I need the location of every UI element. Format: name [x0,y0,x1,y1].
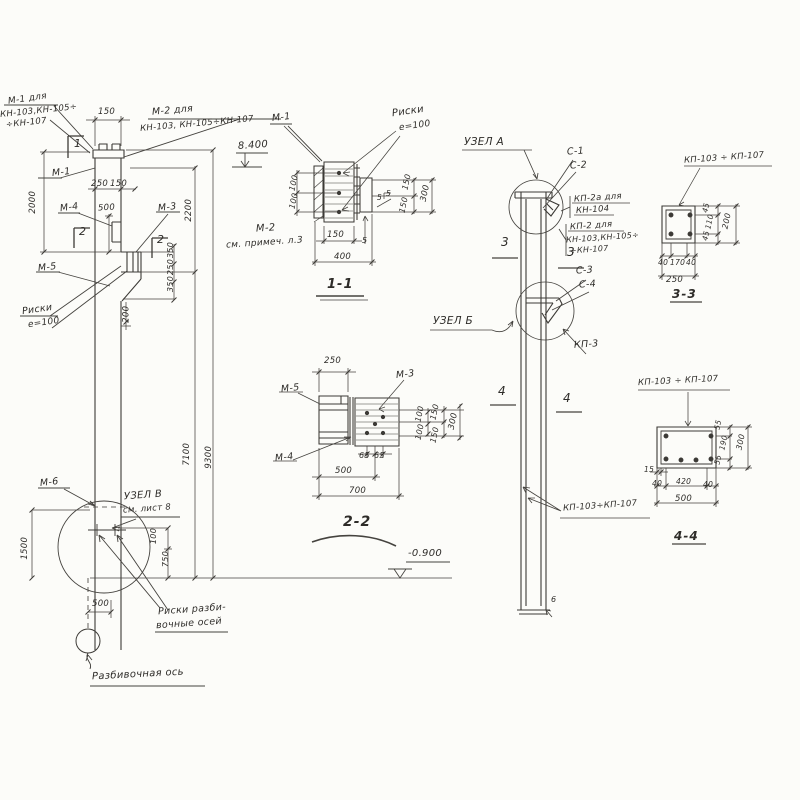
dim-45-33b: 45 [701,230,710,241]
label-riski-elev: Риски [21,303,53,317]
weld-5b: 5 [386,190,391,198]
dim-350-a: 350 [167,242,175,258]
dim-5-11: 5 [362,237,367,245]
label-c4: С-4 [579,279,597,290]
dim-700-22: 700 [349,487,366,496]
dim-2200: 2200 [185,199,194,222]
dim-55-44b: 55 [713,454,722,465]
dim-420-44: 420 [676,478,691,486]
section-mark-2-left: 2 [79,226,86,237]
label-m1: М-1 [52,167,71,178]
label-m3-elev: М-3 [158,202,177,213]
label-m5-elev: М-5 [38,262,57,273]
title-section-1-1: 1-1 [327,278,354,291]
label-m2-variant-models: КН-103, КН-105÷КН-107 [140,115,254,133]
label-m1-variant-models2: ÷КН-107 [6,117,48,130]
label-uzel-v-sheet: см. лист 8 [123,503,172,515]
label-riski-e100-11: е=100 [399,120,432,133]
label-riski-razbiv-2: вочные осей [156,617,222,631]
section-mark-2-right: 2 [157,234,164,245]
dim-150-11r2: 150 [398,196,409,213]
label-m6: М-6 [40,477,59,488]
label-c2: С-2 [570,160,588,171]
label-m1-ref: М-1 [272,112,291,123]
dim-300-44: 300 [735,433,746,450]
dim-500-22: 500 [335,467,352,476]
title-section-4-4: 4-4 [674,530,699,542]
labels-layer: М-1 дляКН-103,КН-105÷÷КН-107М-2 дляКН-10… [0,0,800,800]
label-m4: М-4 [59,202,79,214]
label-kp2a-model: КН-104 [576,205,610,216]
dim-65-a: 65 [359,452,370,460]
label-kp103-107-33: КП-103 ÷ КП-107 [684,151,765,165]
label-m2-note: М-2 [256,223,276,234]
dim-55-44a: 55 [713,419,722,430]
dim-2000: 2000 [29,191,38,214]
dim-100-22a: 100 [414,405,425,422]
dim-100-uzel: 100 [150,528,158,544]
dim-110-33: 110 [704,214,715,230]
label-m2-note2: см. примеч. л.3 [226,236,304,250]
label-m5-22: М-5 [281,383,300,394]
dim-6-base: 6 [551,596,556,604]
section-mark-3-left: 3 [501,236,509,248]
section-mark-3-right: 3 [567,246,575,258]
dim-40-44a: 40 [652,480,662,488]
level-minus-0900: -0.900 [408,549,442,559]
dim-65-b: 65 [374,452,385,460]
dim-500-elev: 500 [98,204,116,213]
dim-250-elev: 250 [91,180,108,189]
label-riski-11: Риски [391,105,424,119]
title-section-2-2: 2-2 [343,515,371,529]
section-mark-4-right: 4 [563,392,571,404]
dim-1500: 1500 [21,537,30,560]
label-kp103-107-44: КП-103 ÷ КП-107 [638,375,719,388]
label-c3: С-3 [576,265,594,276]
dim-250-33: 250 [666,276,683,285]
dim-100-22b: 100 [414,423,425,440]
dim-300-22: 300 [448,412,460,431]
dim-150-22b: 150 [429,426,440,443]
label-kp103-107-col: КП-103÷КП-107 [563,499,638,513]
label-uzel-a: УЗЕЛ А [464,137,504,148]
dim-200-33: 200 [721,212,732,229]
label-kp2-models: КН-103,КН-105÷ [566,231,640,244]
dim-150-11r1: 150 [401,173,412,190]
dim-100-11a: 100 [288,174,299,191]
dim-200: 200 [122,306,131,323]
dim-150-top: 150 [98,108,115,117]
level-8400: 8.400 [238,140,269,152]
section-mark-4-left: 4 [498,385,506,397]
dim-170-33: 170 [670,259,685,267]
label-m2-variant: М-2 для [152,104,194,117]
dim-7100: 7100 [183,443,192,466]
dim-400-11: 400 [334,253,351,262]
label-kp2a: КП-2а для [574,192,622,204]
label-c1: С-1 [567,146,585,157]
dim-45-33a: 45 [701,202,710,213]
label-uzel-b: УЗЕЛ Б [433,316,473,327]
label-m3-22: М-3 [396,369,415,380]
title-section-3-3: 3-3 [672,288,697,300]
section-mark-1: 1 [74,138,81,149]
label-riski-razbiv-1: Риски разби- [158,603,227,617]
weld-5a: 5 [377,194,382,202]
dim-750: 750 [162,551,170,567]
dim-500-44: 500 [675,495,692,504]
label-kp3: КП-3 [574,339,599,350]
dim-150-elev: 150 [110,180,127,189]
label-uzel-v: УЗЕЛ В [124,490,163,503]
label-m1-variant: М-1 для [8,92,48,106]
dim-40-33b: 40 [686,259,696,267]
label-razbiv-axis: Разбивочная ось [92,668,184,683]
dim-150-22a: 150 [429,403,440,420]
dim-40-33a: 40 [658,259,668,267]
dim-250-22: 250 [324,357,341,366]
dim-250-b: 250 [167,259,175,275]
dim-9300: 9300 [205,446,214,469]
label-m4-22: М-4 [275,452,294,463]
dim-15-44: 15 [644,466,654,474]
dim-40-44b: 40 [703,481,713,489]
label-kp2-models2: ÷КН-107 [570,245,609,256]
label-kp2: КП-2 для [570,221,613,232]
dim-190-44: 190 [718,435,729,451]
engineering-drawing-sheet: М-1 дляКН-103,КН-105÷÷КН-107М-2 дляКН-10… [0,0,800,800]
dim-100-11b: 100 [288,192,299,209]
dim-300-11: 300 [420,184,432,203]
dim-350-b: 350 [167,276,175,292]
dim-500-bottom: 500 [92,600,109,609]
dim-150-11: 150 [327,231,344,240]
label-riski-e100-elev: е=100 [28,317,61,330]
